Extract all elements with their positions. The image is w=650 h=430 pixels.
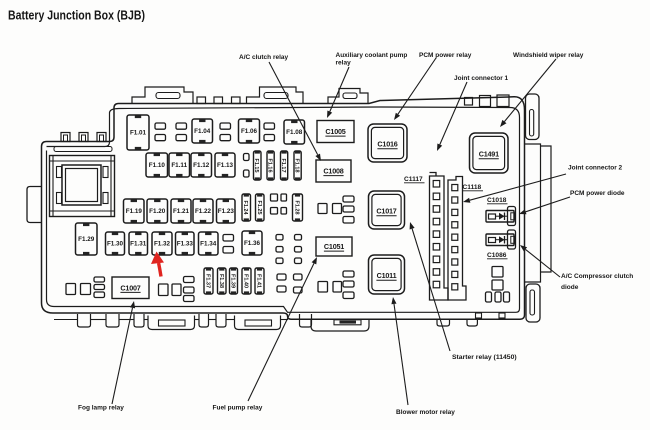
svg-text:relay: relay [336,60,352,67]
svg-text:Blower motor relay: Blower motor relay [396,409,455,416]
svg-text:F1.40: F1.40 [243,274,249,288]
svg-text:C1118: C1118 [463,184,482,191]
svg-text:Joint connector 2: Joint connector 2 [568,165,623,172]
svg-text:F1.37: F1.37 [205,274,211,288]
svg-text:F1.01: F1.01 [130,130,147,137]
svg-text:F1.30: F1.30 [107,241,124,248]
svg-text:F1.29: F1.29 [78,236,95,243]
svg-text:F1.12: F1.12 [193,162,210,169]
svg-text:F1.38: F1.38 [218,274,224,288]
svg-text:diode: diode [561,284,579,291]
svg-text:Fuel pump relay: Fuel pump relay [213,405,263,412]
svg-text:F1.04: F1.04 [194,128,211,135]
svg-text:PCM power diode: PCM power diode [570,190,625,197]
svg-text:F1.28: F1.28 [294,200,300,214]
svg-text:F1.32: F1.32 [154,241,171,248]
svg-text:F1.34: F1.34 [200,241,217,248]
svg-text:C1051: C1051 [324,242,344,251]
svg-text:F1.18: F1.18 [294,158,300,172]
svg-text:F1.39: F1.39 [230,274,236,288]
svg-text:F1.15: F1.15 [253,158,259,172]
svg-text:F1.16: F1.16 [267,158,273,172]
svg-text:F1.25: F1.25 [256,200,262,214]
svg-text:C1016: C1016 [377,140,397,149]
svg-text:Fog lamp relay: Fog lamp relay [78,405,124,412]
svg-text:F1.08: F1.08 [286,129,303,136]
svg-text:C1017: C1017 [376,207,396,216]
svg-text:F1.23: F1.23 [218,208,235,215]
svg-text:C1005: C1005 [325,127,345,136]
svg-text:C1018: C1018 [487,197,507,204]
svg-text:F1.10: F1.10 [149,162,166,169]
svg-text:F1.41: F1.41 [256,274,262,288]
svg-text:C1491: C1491 [479,150,499,159]
svg-text:Windshield wiper relay: Windshield wiper relay [513,52,584,59]
svg-text:F1.31: F1.31 [130,241,147,248]
svg-text:Starter relay (11450): Starter relay (11450) [452,354,517,361]
svg-text:F1.17: F1.17 [280,158,286,172]
svg-text:F1.33: F1.33 [177,241,194,248]
svg-text:C1007: C1007 [120,283,140,292]
svg-text:Battery Junction Box (BJB): Battery Junction Box (BJB) [8,9,145,23]
svg-text:F1.06: F1.06 [241,128,258,135]
svg-text:C1008: C1008 [323,167,343,176]
svg-text:A/C clutch relay: A/C clutch relay [239,54,289,61]
svg-text:C1086: C1086 [487,252,507,259]
svg-text:F1.11: F1.11 [171,162,187,169]
svg-text:F1.22: F1.22 [195,208,212,215]
svg-text:A/C Compressor clutch: A/C Compressor clutch [561,273,633,280]
svg-text:F1.19: F1.19 [126,208,143,215]
svg-text:F1.36: F1.36 [244,240,261,247]
svg-text:F1.21: F1.21 [173,208,190,215]
svg-text:F1.13: F1.13 [217,162,234,169]
svg-text:Joint connector 1: Joint connector 1 [454,75,509,82]
svg-text:C1011: C1011 [377,271,397,280]
svg-text:PCM power relay: PCM power relay [419,52,472,59]
svg-text:Auxiliary coolant pump: Auxiliary coolant pump [336,52,408,59]
svg-text:F1.20: F1.20 [149,208,166,215]
svg-text:C1117: C1117 [404,176,423,183]
svg-text:F1.24: F1.24 [242,200,248,215]
